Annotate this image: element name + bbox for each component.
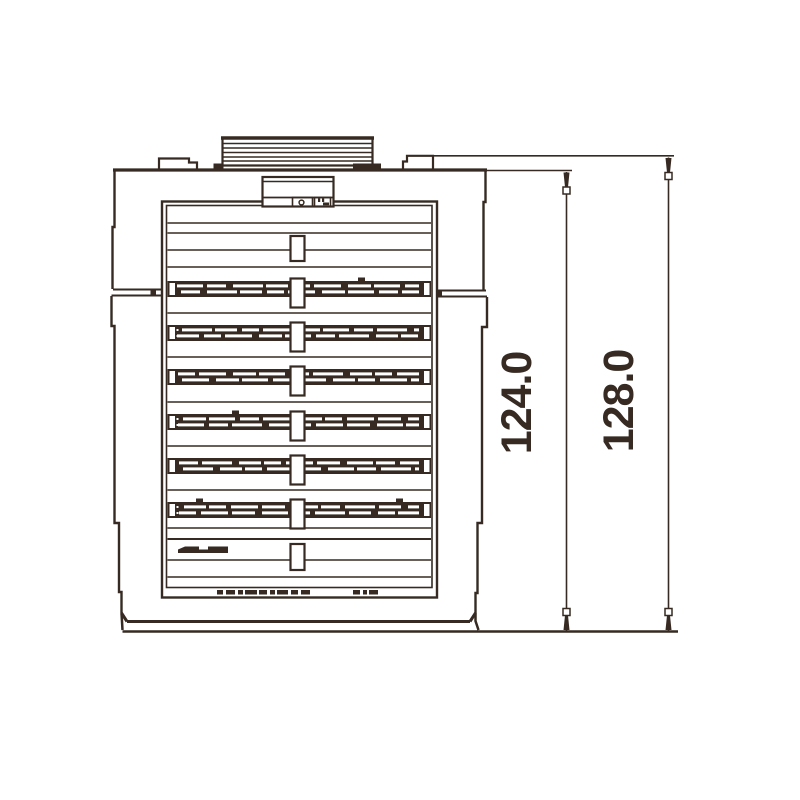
dimension-line-128: 128.0 [595,158,672,631]
center-tab-top [291,236,305,261]
louver-center-tab [291,456,305,485]
dim-arrow-bottom-124 [564,616,570,631]
louver-center-tab [291,412,305,441]
louver-panel [162,202,437,598]
center-tab-bottom [291,544,305,570]
device-outline [112,170,679,632]
louver-center-tab [291,279,305,308]
louver-center-tab [291,323,305,352]
louver-rows [168,278,432,529]
ribbed-heatsink-block [214,138,382,170]
dim-arrow-top-124 [564,173,570,188]
top-right-tab [403,156,433,170]
technical-drawing-canvas: 124.0 128.0 [0,0,800,800]
terminal-box [263,177,334,207]
louver-center-tab [291,367,305,396]
louver-center-tab [291,500,305,529]
side-latch-slot-right [437,291,487,297]
dimension-extension-lines [433,156,674,171]
dimension-line-124: 124.0 [493,172,570,631]
label-strip [178,547,228,554]
top-left-tab [159,159,197,171]
side-latch-slot-left [112,290,163,296]
molded-text-marks [217,590,378,595]
technical-drawing: 124.0 128.0 [0,0,800,800]
dim-arrow-bottom-128 [666,616,672,631]
dim-label-124: 124.0 [493,352,541,455]
dim-arrow-top-128 [666,158,672,173]
dim-label-128: 128.0 [595,350,643,453]
